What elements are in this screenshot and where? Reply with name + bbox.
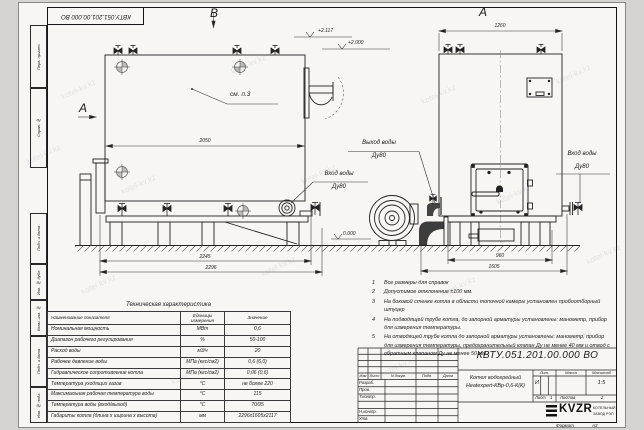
spec-table-title: Техническая характеристика xyxy=(47,302,290,308)
table-row: Температура воды (вход/выход)°С70/95 xyxy=(48,401,291,412)
spec-value: 20 xyxy=(225,346,291,357)
table-row: Рабочее давление водыМПа (кгс/см2)0,6 (6… xyxy=(48,357,291,368)
spec-value: 70/95 xyxy=(225,401,291,412)
water-inlet-right-label: Вход воды xyxy=(554,151,610,157)
spec-name: Рабочее давление воды xyxy=(48,357,181,368)
water-outlet-size: Ду80 xyxy=(348,153,410,159)
section-a-label: А xyxy=(79,102,87,115)
spec-units: % xyxy=(181,335,225,346)
sig-row-nkontr: Н.контр. xyxy=(359,410,377,414)
note-number: 2 xyxy=(372,288,375,296)
sig-header-podp: Подп. xyxy=(416,374,438,378)
sheet-label: Лист xyxy=(535,396,546,400)
leader-lines xyxy=(78,12,610,239)
fan-duct-elbow xyxy=(419,222,444,246)
spec-value: не более 220 xyxy=(225,379,291,390)
product-name-line2: Heatexpert-КВр-0,6-К(К) xyxy=(458,384,533,390)
note-number: 4 xyxy=(372,316,375,324)
water-inlet-right-size: Ду80 xyxy=(554,164,610,170)
dim-2296: 2296 xyxy=(190,266,232,271)
spec-table: Наименование показателя Единицы измерени… xyxy=(47,311,291,423)
spec-name: Гидравлическое сопротивление котла xyxy=(48,368,181,379)
lit-header: Лит. xyxy=(533,371,556,375)
format-value: А3 xyxy=(592,424,598,429)
spec-units: МПа (кгс/см2) xyxy=(181,368,225,379)
elevation-0000: 0.000 xyxy=(343,232,356,237)
spec-name: Расход воды xyxy=(48,346,181,357)
spec-col-value: Значение xyxy=(225,312,291,325)
water-outlet-label: Выход воды xyxy=(348,140,410,146)
sig-row-tkontr: Т.контр. xyxy=(359,395,376,399)
note-number: 3 xyxy=(372,298,375,306)
dim-1260: 1260 xyxy=(480,24,520,29)
elevation-2117: +2.117 xyxy=(318,29,333,34)
ground-line xyxy=(75,246,580,252)
note-item: 2Допустимое отклонение ±100 мм. xyxy=(371,288,611,296)
note-text: На подводящей трубе котла, до запорной а… xyxy=(384,317,607,331)
spec-units: °С xyxy=(181,390,225,401)
sheet-value: 1 xyxy=(550,396,552,400)
lit-value: И xyxy=(533,381,541,387)
spec-value: 0,6 (6,0) xyxy=(225,357,291,368)
dim-960: 960 xyxy=(485,254,515,259)
kvzr-logo-icon xyxy=(546,405,557,418)
lifting-target-marks xyxy=(114,59,251,219)
view-b-label: В xyxy=(210,7,218,20)
spec-name: Температура воды (вход/выход) xyxy=(48,401,181,412)
sig-header-list: Лист xyxy=(368,374,381,378)
sig-header-izm: Изм xyxy=(358,374,368,378)
note-item: 3На боковой стенке котла в области топоч… xyxy=(371,298,611,315)
spec-value: 115 xyxy=(225,390,291,401)
doc-number: КВТУ.051.201.00.000 ВО xyxy=(458,351,617,362)
spec-name: Номинальная мощность xyxy=(48,325,181,336)
sheets-label: Листов xyxy=(560,396,575,400)
view-a-label: А xyxy=(479,6,487,19)
note-item: 1Все размеры для справок xyxy=(371,279,611,287)
view-b-side-view xyxy=(80,55,344,246)
spec-value: 2296х1605х2117 xyxy=(225,412,291,423)
kvzr-logo-sub1: КОТЕЛЬНЫЙ xyxy=(593,406,616,410)
dim-2050: 2050 xyxy=(185,139,225,144)
blower-fan xyxy=(370,196,419,246)
sheets-value: 2 xyxy=(601,396,603,400)
sig-header-data: Дата xyxy=(438,374,458,378)
note-text: На боковой стенке котла в области топочн… xyxy=(384,299,600,313)
view-a-front-view xyxy=(370,50,573,246)
spec-name: Максимальная рабочая температура воды xyxy=(48,390,181,401)
spec-units: мм xyxy=(181,412,225,423)
sig-row-utv: Утв. xyxy=(359,417,369,421)
note-text: Допустимое отклонение ±100 мм. xyxy=(384,289,473,295)
kvzr-logo-sub2: ЗАВОД РЭП xyxy=(593,412,614,416)
scale-value: 1:5 xyxy=(586,381,617,387)
spec-value: 0,6 xyxy=(225,325,291,336)
table-row: Максимальная рабочая температура воды°С1… xyxy=(48,390,291,401)
sig-header-doc: N докум. xyxy=(381,374,416,378)
spec-value: 50-100 xyxy=(225,335,291,346)
elevation-2000: +2.000 xyxy=(348,41,363,46)
water-inlet-left-label: Вход воды xyxy=(311,171,367,177)
spec-units: МВт xyxy=(181,325,225,336)
spec-name: Габариты котла (длина х ширина х высота) xyxy=(48,412,181,423)
see-note-ref: см. п.3 xyxy=(230,92,250,99)
note-text: Все размеры для справок xyxy=(384,280,449,286)
furnace-door xyxy=(471,164,533,216)
spec-units: МПа (кгс/см2) xyxy=(181,357,225,368)
spec-col-name: Наименование показателя xyxy=(48,312,181,325)
spec-units: °С xyxy=(181,401,225,412)
spec-units: м3/ч xyxy=(181,346,225,357)
table-row: Расход водым3/ч20 xyxy=(48,346,291,357)
table-row: Номинальная мощностьМВт0,6 xyxy=(48,325,291,336)
mass-header: Масса xyxy=(556,371,586,375)
table-row: Диапазон рабочего регулирования%50-100 xyxy=(48,335,291,346)
view-b-valves xyxy=(114,46,319,217)
dim-2245: 2245 xyxy=(185,255,225,260)
format-label: Формат xyxy=(556,424,574,429)
note-number: 1 xyxy=(372,279,375,287)
kvzr-logo-text: KVZR xyxy=(559,403,592,415)
table-row: Габариты котла (длина х ширина х высота)… xyxy=(48,412,291,423)
spec-value: 0,06 (0,6) xyxy=(225,368,291,379)
sig-row-prov: Пров. xyxy=(359,388,370,392)
spec-name: Диапазон рабочего регулирования xyxy=(48,335,181,346)
scale-header: Масштаб xyxy=(586,371,617,375)
note-item: 4На подводящей трубе котла, до запорной … xyxy=(371,316,611,333)
sig-row-razrab: Разраб. xyxy=(359,381,374,385)
spec-name: Температура уходящих газов xyxy=(48,379,181,390)
product-name-line1: Котел водогрейный xyxy=(458,376,533,382)
dim-1605: 1605 xyxy=(474,265,514,270)
spec-units: °С xyxy=(181,379,225,390)
note-number: 5 xyxy=(372,333,375,341)
table-row: Температура уходящих газов°Сне более 220 xyxy=(48,379,291,390)
spec-col-units: Единицы измерения xyxy=(181,312,225,325)
table-row: Гидравлическое сопротивление котлаМПа (к… xyxy=(48,368,291,379)
water-inlet-left-size: Ду80 xyxy=(311,184,367,190)
notes-list: 1Все размеры для справок 2Допустимое отк… xyxy=(371,279,611,359)
